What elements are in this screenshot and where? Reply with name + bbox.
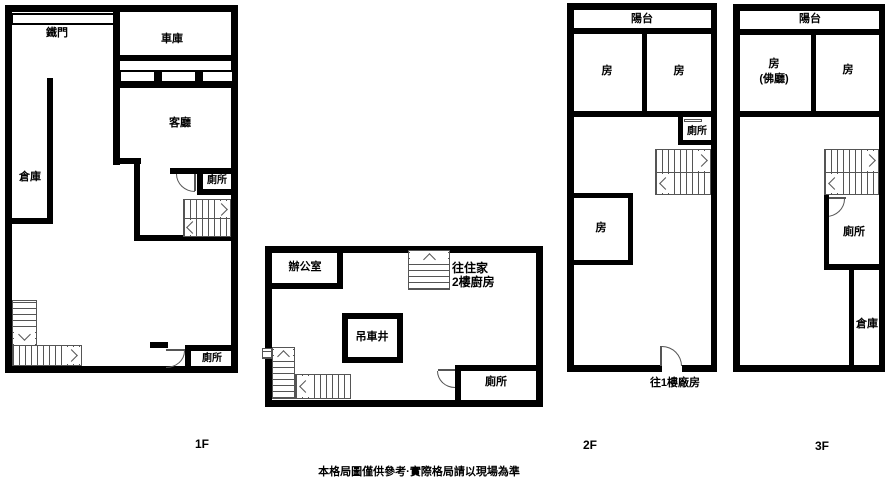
crane-shaft-label: 吊車井 <box>347 331 397 344</box>
stair-arrow <box>185 220 196 235</box>
room-label: 房 <box>816 64 880 77</box>
sliding-door <box>684 119 702 122</box>
stair-arrow <box>865 151 878 171</box>
stair-arrow <box>297 376 310 397</box>
wall <box>455 365 543 371</box>
wall <box>572 260 633 265</box>
stair-arrow <box>218 201 229 217</box>
stairs-2f <box>655 149 711 195</box>
room-sublabel: (佛廳) <box>741 73 807 86</box>
wall <box>113 55 238 61</box>
stair-arrow <box>67 347 81 364</box>
stair-arrow <box>697 151 710 171</box>
door-arc <box>176 174 195 192</box>
wall <box>733 4 885 11</box>
wall <box>5 366 238 373</box>
stair-note-line1: 往住家 <box>452 261 532 275</box>
wall <box>5 218 53 224</box>
office-label: 辦公室 <box>272 261 338 274</box>
gate-label: 鐵門 <box>27 27 87 40</box>
roller-gate <box>11 13 115 25</box>
balcony-label: 陽台 <box>600 13 684 26</box>
storage-label: 倉庫 <box>853 318 881 331</box>
wall <box>567 3 574 372</box>
wall <box>272 283 343 289</box>
wall <box>5 5 12 373</box>
wall <box>265 246 543 253</box>
stairs-mezz-horizontal <box>295 374 351 399</box>
wall <box>197 189 238 195</box>
floor-label-3f: 3F <box>802 439 842 453</box>
stair-arrow <box>657 174 670 193</box>
stair-arrow <box>826 174 839 193</box>
window-pane <box>119 70 156 83</box>
room-label: 房 <box>574 222 628 235</box>
wall <box>567 111 717 117</box>
stair-arrow <box>274 349 293 360</box>
door-arc <box>662 346 682 366</box>
door-opening <box>662 365 682 372</box>
wall <box>733 111 885 117</box>
room-label: 房 <box>647 65 711 78</box>
room-label: 房 <box>572 65 642 78</box>
toilet-label: 廁所 <box>683 126 711 138</box>
stairs-1f-to-2f <box>183 199 231 237</box>
floor-label-1f: 1F <box>182 437 222 451</box>
wall <box>733 4 740 372</box>
toilet-label: 廁所 <box>832 226 876 239</box>
room-label: 房 <box>741 58 807 71</box>
toilet-label: 廁所 <box>470 376 522 389</box>
wall <box>733 365 885 372</box>
window-pane <box>160 70 197 83</box>
wall <box>185 345 191 372</box>
wall <box>711 3 717 372</box>
wall <box>572 193 633 198</box>
wall <box>567 3 717 10</box>
window-pane <box>201 70 234 83</box>
wall <box>5 5 238 12</box>
stairs-to-2f-kitchen <box>408 250 450 290</box>
storage-label: 倉庫 <box>0 171 60 184</box>
toilet-label: 廁所 <box>200 175 234 187</box>
wall <box>824 264 885 270</box>
wall <box>678 140 711 145</box>
wall <box>824 195 829 270</box>
wall <box>455 365 461 407</box>
exit-note: 往1樓廠房 <box>628 377 722 390</box>
wall <box>567 365 717 372</box>
stair-arrow <box>14 332 35 345</box>
wall <box>628 193 633 265</box>
wall <box>134 158 140 241</box>
stairs-1f-lower-vertical <box>12 300 37 346</box>
window-hatch <box>262 348 272 359</box>
disclaimer-text: 本格局圖僅供參考·實際格局請以現場為準 <box>269 466 569 479</box>
stairs-1f-lower-horizontal <box>12 345 82 366</box>
balcony-label: 陽台 <box>768 13 852 26</box>
wall <box>265 246 272 407</box>
living-room-label: 客廳 <box>150 117 210 130</box>
stair-note-line2: 2樓廚房 <box>452 275 542 289</box>
toilet-label: 廁所 <box>194 353 230 365</box>
wall <box>879 4 885 372</box>
stairs-3f <box>824 149 879 195</box>
floor-plan-canvas: 鐵門 車庫 客廳 倉庫 廁所 <box>0 0 889 485</box>
wall <box>150 342 168 348</box>
wall <box>536 246 543 407</box>
floor-label-2f: 2F <box>570 438 610 452</box>
stairs-mezz-vertical <box>272 347 295 399</box>
garage-label: 車庫 <box>142 33 202 46</box>
stair-arrow <box>410 252 448 263</box>
wall <box>733 29 885 35</box>
wall <box>47 78 53 224</box>
wall <box>185 345 231 351</box>
wall <box>265 400 543 407</box>
door-arc <box>437 371 455 388</box>
